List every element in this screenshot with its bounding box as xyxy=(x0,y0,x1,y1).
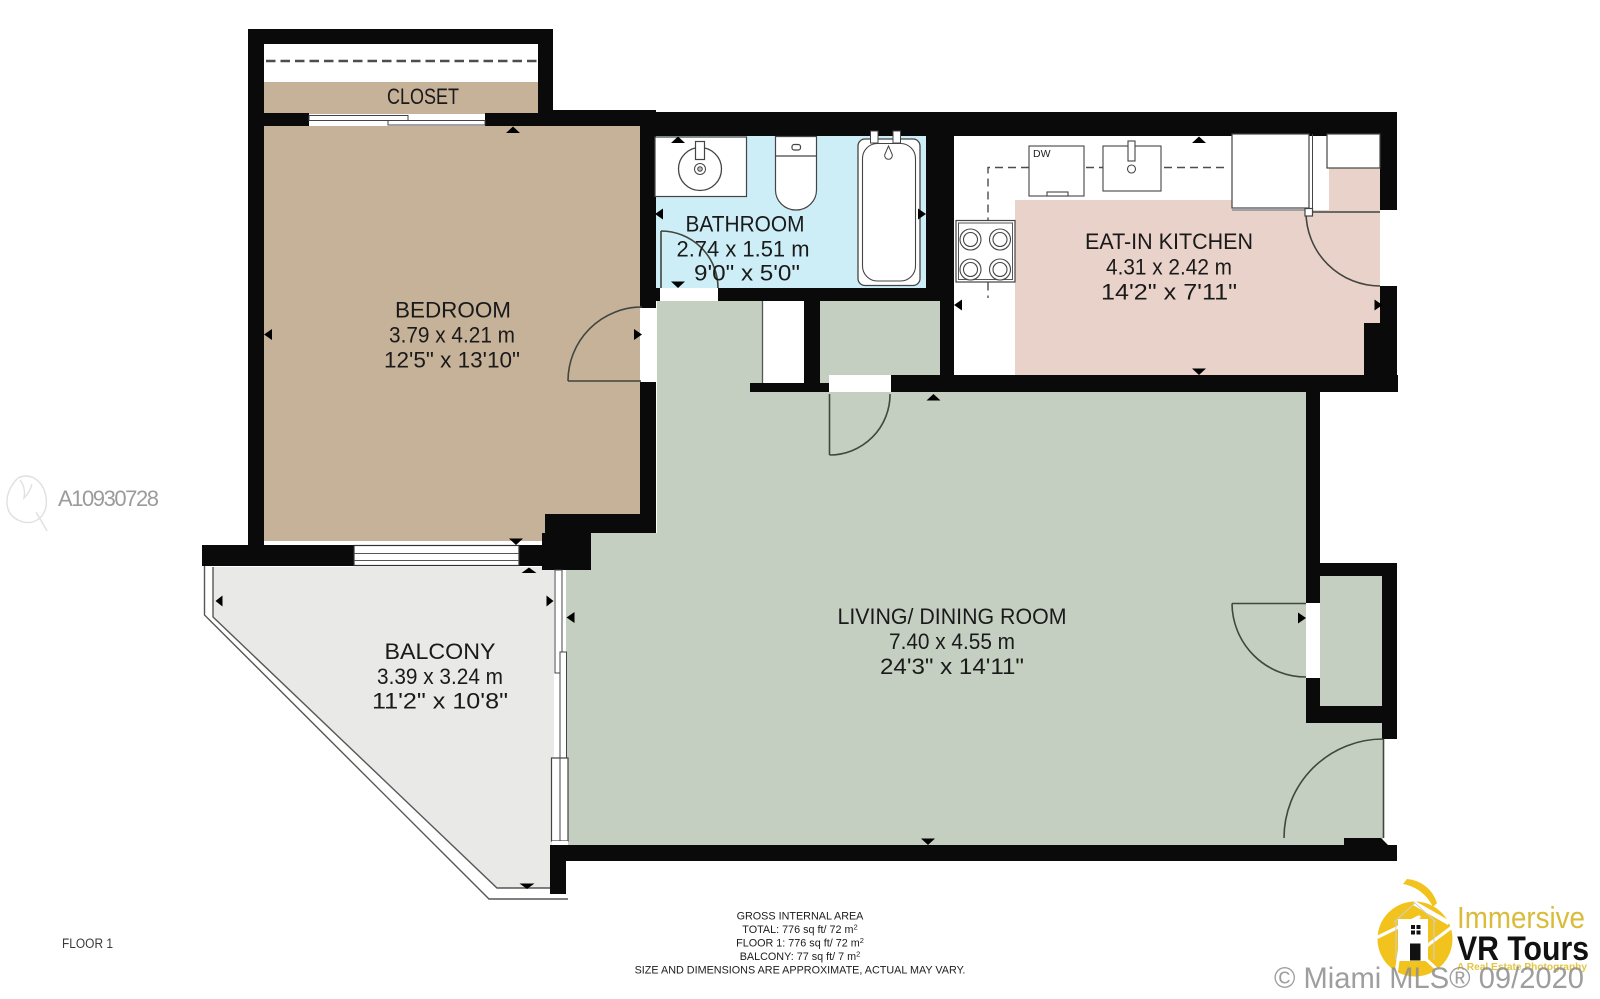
svg-text:SIZE AND DIMENSIONS ARE APPROX: SIZE AND DIMENSIONS ARE APPROXIMATE, ACT… xyxy=(635,965,966,977)
svg-text:2.74 x 1.51 m: 2.74 x 1.51 m xyxy=(677,237,810,262)
svg-text:BALCONY: BALCONY xyxy=(385,639,496,664)
svg-text:7.40 x 4.55 m: 7.40 x 4.55 m xyxy=(889,629,1015,654)
svg-text:3.79 x 4.21 m: 3.79 x 4.21 m xyxy=(389,323,515,348)
svg-text:© Miami MLS® 09/2020: © Miami MLS® 09/2020 xyxy=(1274,962,1584,995)
svg-text:4.31 x 2.42 m: 4.31 x 2.42 m xyxy=(1106,255,1232,280)
svg-text:TOTAL: 776 sq ft/ 72 m2: TOTAL: 776 sq ft/ 72 m2 xyxy=(742,923,857,937)
svg-text:A10930728: A10930728 xyxy=(58,486,159,511)
svg-text:LIVING/ DINING ROOM: LIVING/ DINING ROOM xyxy=(838,604,1067,629)
svg-text:EAT-IN KITCHEN: EAT-IN KITCHEN xyxy=(1085,229,1253,254)
svg-text:GROSS INTERNAL AREA: GROSS INTERNAL AREA xyxy=(737,911,865,923)
svg-text:FLOOR 1: 776 sq ft/ 72 m2: FLOOR 1: 776 sq ft/ 72 m2 xyxy=(736,936,864,950)
svg-text:FLOOR 1: FLOOR 1 xyxy=(62,936,113,951)
svg-text:CLOSET: CLOSET xyxy=(387,84,459,109)
svg-text:DW: DW xyxy=(1033,148,1051,160)
svg-text:BALCONY: 77 sq ft/ 7 m2: BALCONY: 77 sq ft/ 7 m2 xyxy=(740,950,861,964)
svg-text:14'2" x 7'11": 14'2" x 7'11" xyxy=(1101,280,1237,305)
svg-text:12'5" x 13'10": 12'5" x 13'10" xyxy=(384,348,520,373)
svg-text:9'0" x 5'0": 9'0" x 5'0" xyxy=(694,261,800,286)
svg-text:3.39 x 3.24 m: 3.39 x 3.24 m xyxy=(377,664,503,689)
svg-text:BEDROOM: BEDROOM xyxy=(395,298,511,323)
svg-text:24'3" x 14'11": 24'3" x 14'11" xyxy=(880,654,1024,679)
svg-text:BATHROOM: BATHROOM xyxy=(686,212,805,237)
svg-text:11'2" x 10'8": 11'2" x 10'8" xyxy=(372,689,508,714)
